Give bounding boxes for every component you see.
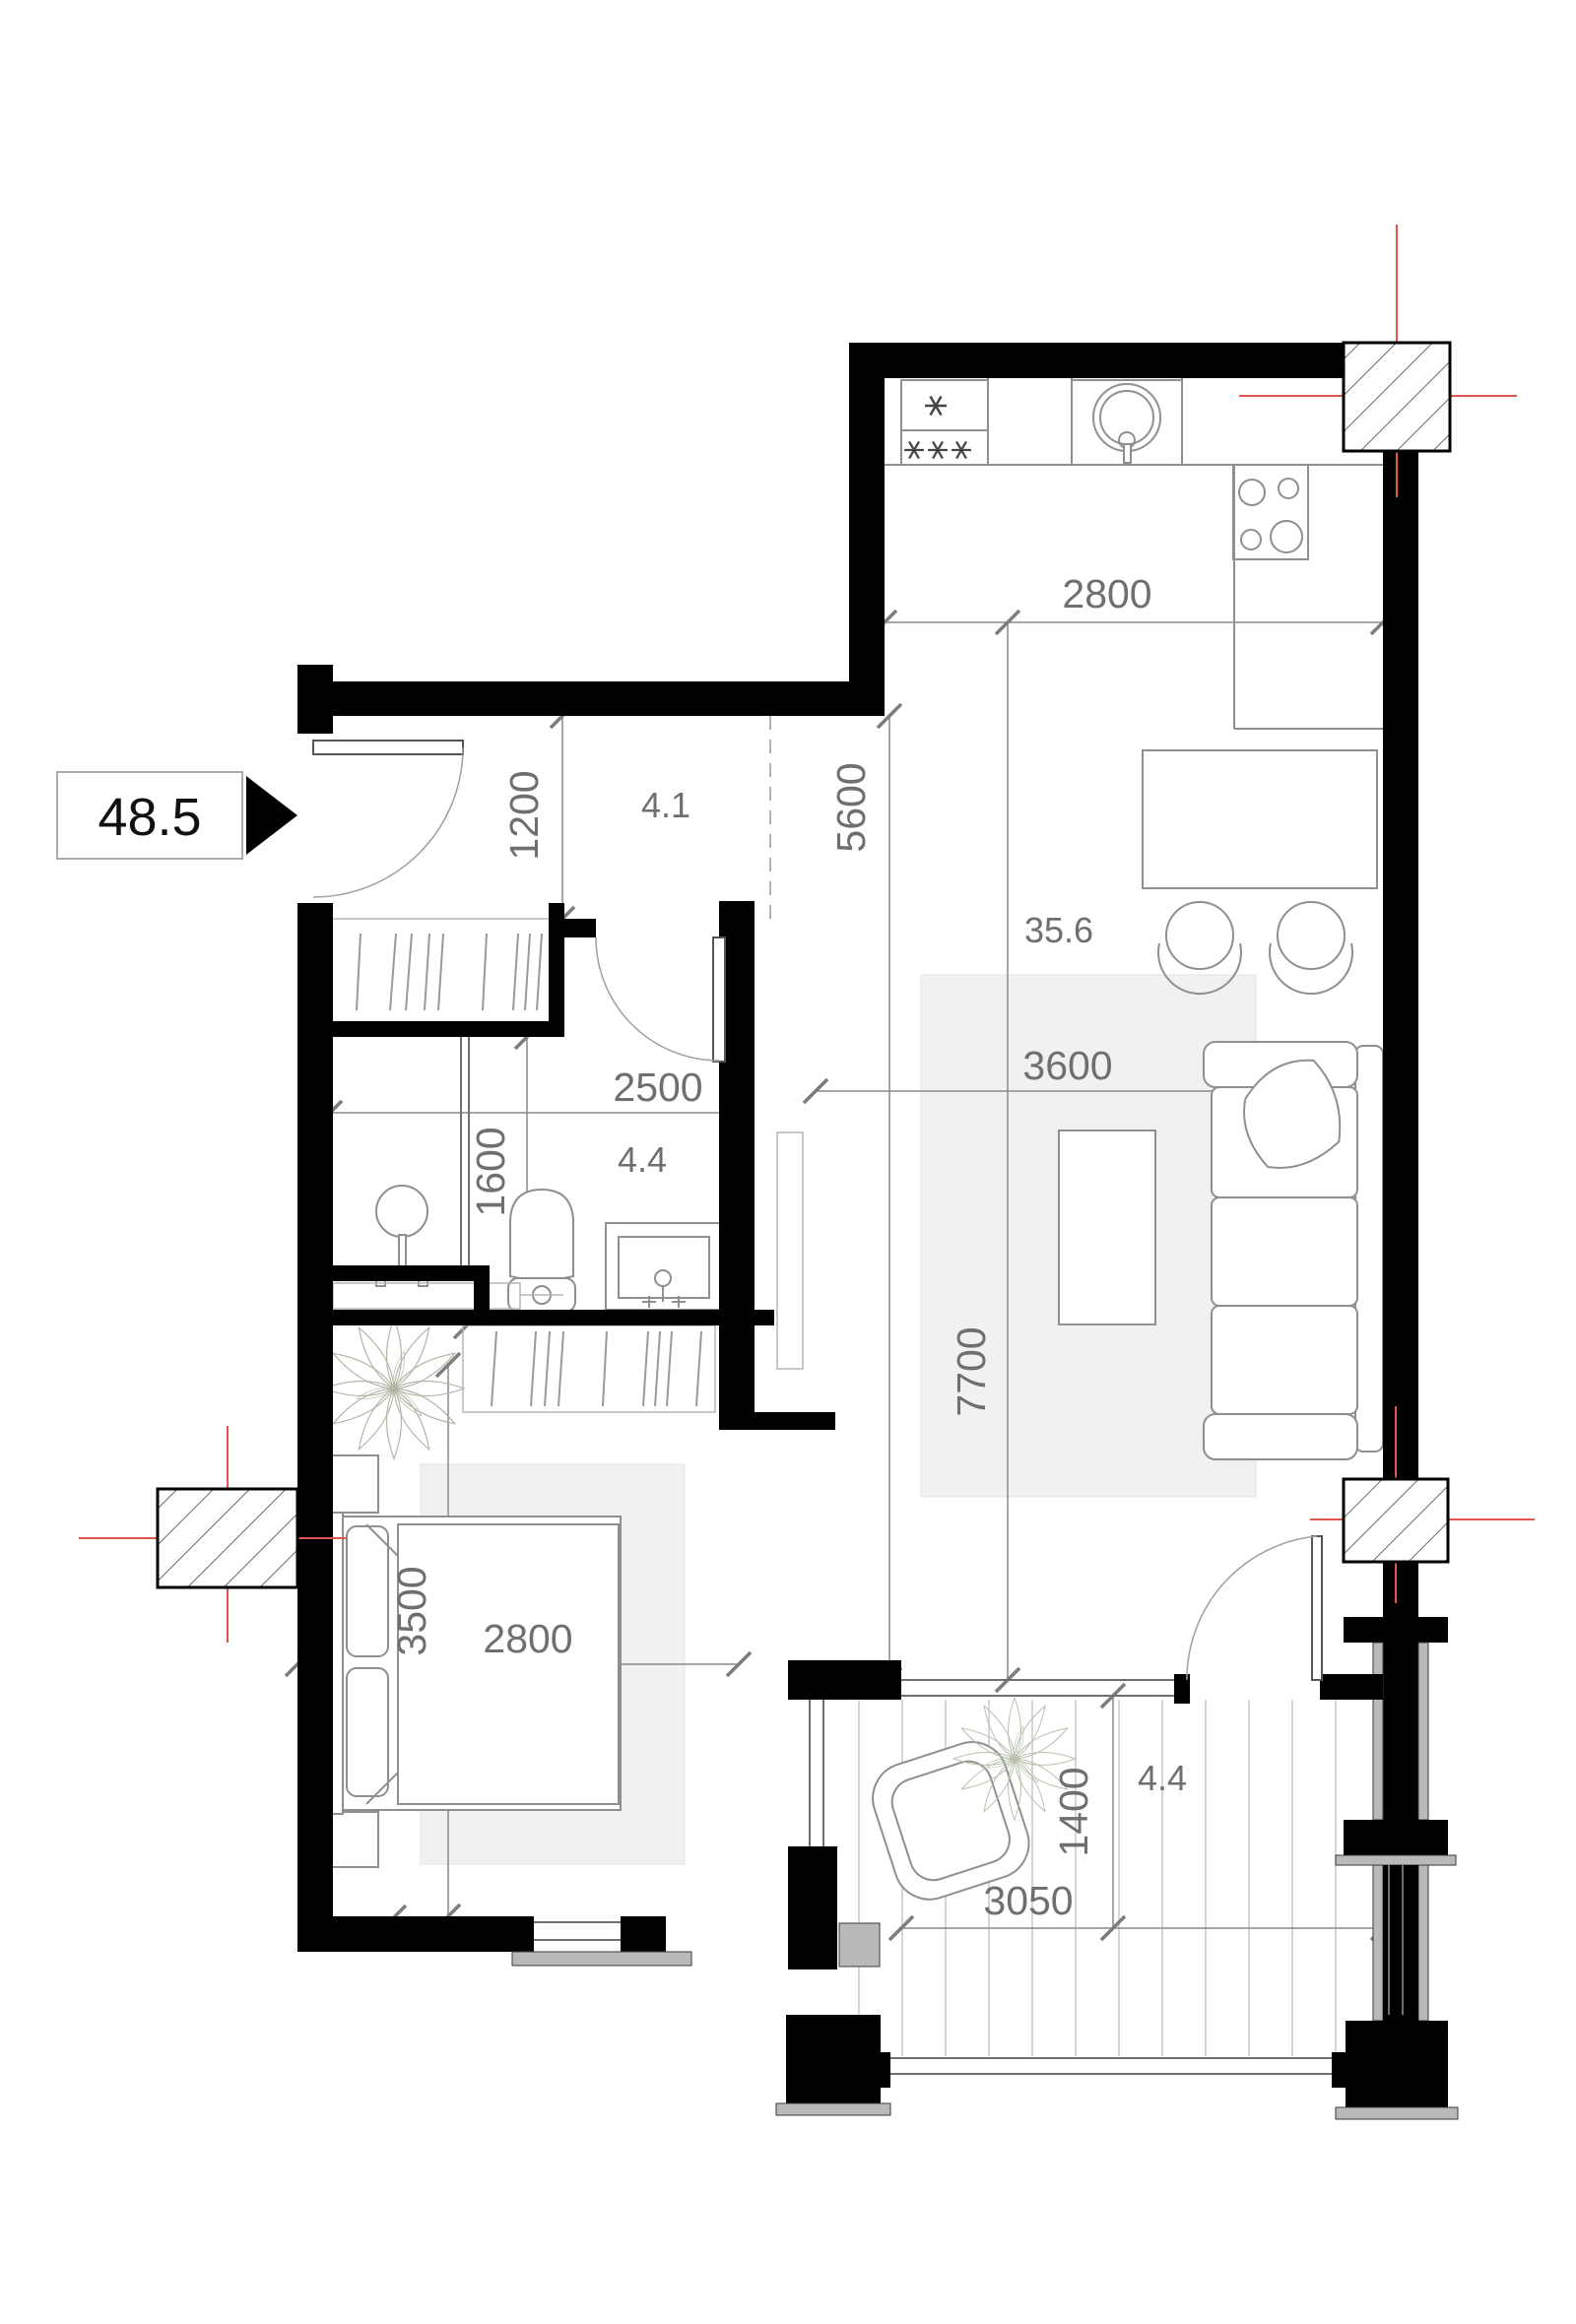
dimension-label: 2500 xyxy=(613,1065,702,1110)
room-label-bathroom: 4.4 xyxy=(618,1139,667,1180)
dimension-label: 1200 xyxy=(501,770,547,860)
toilet-icon xyxy=(508,1190,575,1312)
dimension-label: 1400 xyxy=(1051,1767,1096,1856)
right-outer-wall xyxy=(1383,343,1418,1479)
structural-column-icon xyxy=(1344,343,1450,451)
chair-icon xyxy=(1270,902,1352,994)
window-sill xyxy=(512,1952,691,1966)
coffee-table-icon xyxy=(1059,1130,1155,1324)
dimension-label: 3600 xyxy=(1022,1043,1112,1088)
balcony-door xyxy=(1187,1536,1322,1680)
plant-icon xyxy=(324,1319,465,1459)
dimension-label: 2800 xyxy=(1062,571,1151,616)
structural-column-icon xyxy=(1344,1479,1448,1562)
balcony-left-top-post xyxy=(788,1660,901,1700)
pillow-icon xyxy=(347,1526,388,1656)
shower-half-wall xyxy=(297,1265,490,1281)
nightstand-icon xyxy=(327,1455,378,1513)
room-label-living: 35.6 xyxy=(1024,910,1093,950)
balcony-right-post xyxy=(1383,1643,1418,1820)
room-label-hallway: 4.1 xyxy=(641,785,690,825)
vanity-sink-icon xyxy=(606,1223,722,1310)
door-leaf xyxy=(313,741,463,754)
divider-nub xyxy=(719,1412,835,1430)
bedroom-closet xyxy=(463,1325,715,1412)
closet-bottom-wall xyxy=(297,1021,564,1037)
pillow-icon xyxy=(347,1668,388,1796)
bathroom-door xyxy=(596,937,725,1062)
sink-icon xyxy=(1072,380,1182,465)
balcony-corner-post xyxy=(1346,2021,1448,2107)
dimension-label: 3500 xyxy=(389,1566,434,1655)
structural-column-icon xyxy=(158,1489,297,1587)
left-outer-wall xyxy=(297,903,333,1952)
total-area-badge: 48.5 xyxy=(57,772,297,859)
freezer-star-icon xyxy=(928,441,948,458)
door-leaf xyxy=(713,937,725,1062)
entrance-jamb-wall xyxy=(297,665,333,734)
dimension-label: 5600 xyxy=(828,762,874,852)
freezer-star-icon xyxy=(904,441,924,458)
door-swing-icon xyxy=(596,937,719,1061)
bedroom-bottom-wall xyxy=(297,1916,524,1952)
door-swing-icon xyxy=(313,747,463,897)
kitchen-top-wall xyxy=(849,343,1418,378)
stove-icon xyxy=(1233,465,1308,559)
dimension-label: 7700 xyxy=(949,1326,994,1416)
wardrobe-hangers-icon xyxy=(357,934,542,1010)
fridge-icon xyxy=(901,380,988,465)
dining-table-icon xyxy=(1143,750,1377,888)
floorplan-canvas: 2800 1200 2500 1600 5600 7700 3600 3500 … xyxy=(0,0,1576,2324)
entrance-door xyxy=(313,741,463,897)
nightstand-icon xyxy=(327,1812,378,1867)
bathroom-door-jamb xyxy=(549,919,596,937)
freezer-star-icon xyxy=(925,397,947,416)
balcony-left-post xyxy=(788,1846,837,1969)
entry-closet xyxy=(333,919,549,1010)
tv-panel xyxy=(777,1132,803,1369)
room-label-balcony: 4.4 xyxy=(1138,1758,1187,1798)
door-swing-icon xyxy=(1187,1536,1317,1680)
dimension-label: 3050 xyxy=(983,1878,1073,1923)
wardrobe-hangers-icon xyxy=(492,1331,701,1406)
bathroom-bottom-wall xyxy=(297,1310,774,1325)
sofa-icon xyxy=(1204,1042,1383,1459)
dimension-label: 1600 xyxy=(468,1127,513,1216)
balcony-left-corner-post xyxy=(786,2015,881,2103)
hall-top-wall xyxy=(325,681,885,716)
total-area-value: 48.5 xyxy=(98,788,201,847)
dimension-label: 2800 xyxy=(483,1616,572,1661)
bed-icon xyxy=(327,1455,621,1867)
entrance-arrow-icon xyxy=(246,776,297,855)
door-leaf xyxy=(1312,1536,1322,1680)
kitchen-left-wall xyxy=(849,343,885,681)
freezer-star-icon xyxy=(952,441,971,458)
